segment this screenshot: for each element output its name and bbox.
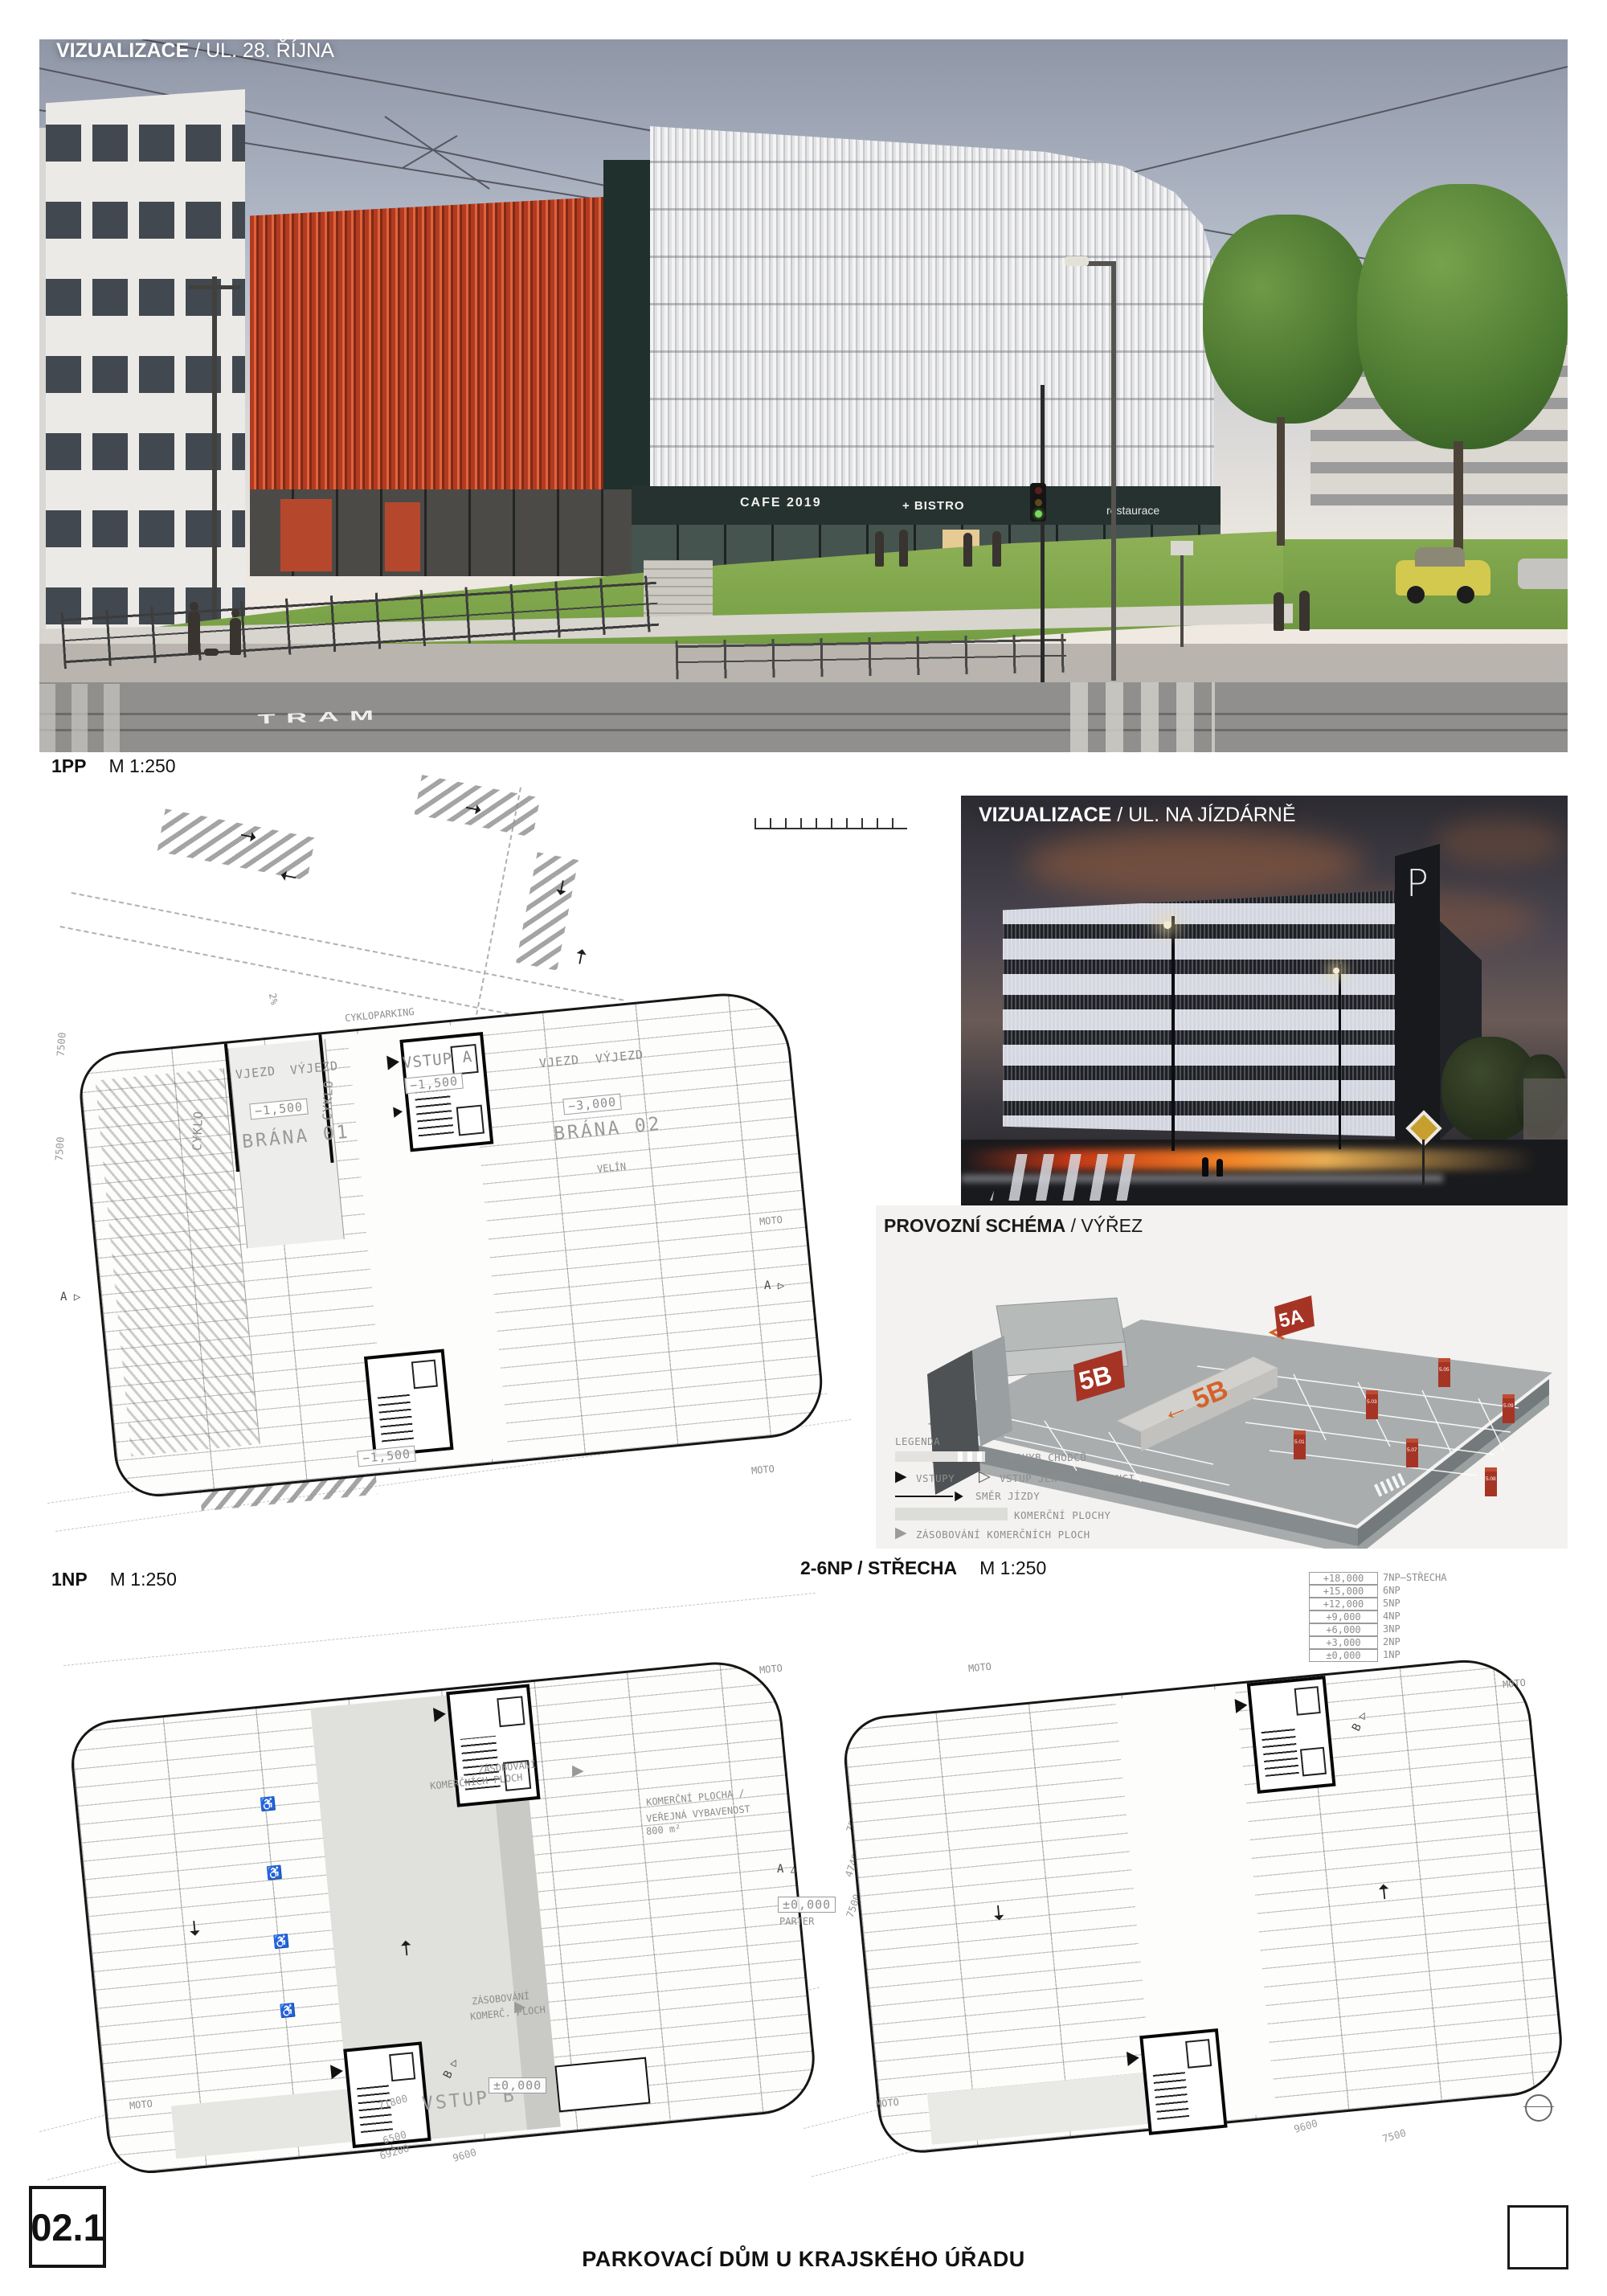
plan-1np-scale: M 1:250 [110, 1569, 177, 1590]
red-pillar: 5.09 [1503, 1394, 1515, 1423]
visualization-street-label-rest: / UL. 28. ŘÍJNA [189, 39, 334, 62]
operations-scheme: PROVOZNÍ SCHÉMA / VÝŘEZ [876, 1205, 1568, 1549]
svg-text:5.05: 5.05 [1439, 1367, 1450, 1373]
plan-1np-name: 1NP [51, 1569, 88, 1590]
label-moto: MOTO [875, 2097, 899, 2110]
entrance-marker [393, 1106, 403, 1118]
plan-26np-building: ➝ ➝ [840, 1654, 1567, 2157]
person-silhouette [1202, 1157, 1208, 1177]
direction-arrow: ➝ [568, 947, 594, 967]
legend-item: POHYB CHODCŮ [1009, 1451, 1086, 1463]
supply-triangle-icon: ▶ [572, 1763, 584, 1778]
street-lamp-luminaire [1065, 256, 1089, 266]
railing [676, 634, 1067, 679]
street-lamp-pole [1111, 263, 1116, 681]
elevation-value: +18,000 [1309, 1572, 1378, 1585]
accessible-parking-icon: ♿ [279, 2002, 296, 2020]
parking-house-slat-facade [650, 126, 1214, 493]
night-lamp-glow [1333, 968, 1339, 974]
elevation-value: +9,000 [1309, 1610, 1378, 1623]
grid-line [63, 1593, 816, 1666]
utility-pole [212, 276, 217, 654]
direction-arrow: ➝ [394, 1939, 419, 1958]
staff-entrance-triangle-icon: ▷ [979, 1469, 991, 1484]
svg-text:5.01: 5.01 [1294, 1439, 1305, 1445]
edge-zone [927, 2070, 1172, 2144]
crosswalk-left [39, 684, 129, 752]
plan-26np: 2-6NP / STŘECHAM 1:250 ➝ ➝ +18,0007NP–ST… [795, 1557, 1568, 2200]
person-head [190, 602, 198, 611]
red-pillar: 5.05 [1438, 1358, 1450, 1387]
dimension: 7500 [53, 1136, 67, 1161]
elevation-value: +3,000 [1309, 1636, 1378, 1649]
dimension: 7500 [55, 1032, 68, 1057]
plan-1np-title: 1NPM 1:250 [51, 1569, 177, 1590]
person-silhouette [1274, 592, 1284, 631]
entrance-marker [433, 1707, 447, 1722]
person-silhouette [899, 530, 908, 567]
elevation-name: 1NP [1378, 1649, 1401, 1662]
night-lamp-pole [1172, 916, 1175, 1151]
elevation-name: 4NP [1378, 1610, 1401, 1623]
legend-item: VSTUP JEN ZAMĚSTNANCI [1000, 1472, 1135, 1484]
footer-empty-box [1507, 2205, 1568, 2269]
crosswalk [1070, 682, 1215, 752]
car-wheel [1407, 586, 1425, 604]
board-title: PARKOVACÍ DŮM U KRAJSKÉHO ÚŘADU [0, 2247, 1607, 2272]
elevation-name: 2NP [1378, 1636, 1401, 1649]
plan-1pp-scale: M 1:250 [108, 755, 175, 776]
plan-26np-name: 2-6NP / STŘECHA [800, 1557, 957, 1578]
night-lamp-glow [1163, 921, 1172, 929]
level-label: ±0,000 [489, 2077, 546, 2093]
legend-item: VSTUPY [916, 1472, 955, 1484]
direction-arrow: ➝ [278, 863, 298, 889]
sunset-cloud [1025, 828, 1363, 900]
visualization-street-label: VIZUALIZACE / UL. 28. ŘÍJNA [56, 39, 334, 63]
label-cyklo: CYKLO [190, 1111, 206, 1152]
accessible-parking-icon: ♿ [266, 1864, 284, 1882]
section-marker-a: A △ [777, 1863, 797, 1876]
label-slope: 2% [267, 992, 280, 1005]
entrance-marker [386, 1054, 400, 1070]
svg-text:5.07: 5.07 [1407, 1447, 1417, 1453]
visualization-street-label-bold: VIZUALIZACE [56, 39, 189, 62]
person-silhouette [230, 618, 241, 655]
elevation-value: +6,000 [1309, 1623, 1378, 1636]
traffic-light-pole [1041, 385, 1045, 682]
night-crosswalk [990, 1154, 1151, 1201]
dimension: 9600 [452, 2146, 478, 2164]
svg-text:5.03: 5.03 [1367, 1399, 1377, 1405]
person-head [231, 609, 239, 617]
plan-1pp-title: 1PPM 1:250 [51, 755, 176, 777]
elevation-name: 6NP [1378, 1585, 1401, 1598]
entrance-triangle-icon: ▶ [895, 1469, 907, 1484]
person-silhouette [992, 531, 1001, 567]
red-pillar: 5.03 [1366, 1390, 1378, 1419]
elevation-name: 3NP [1378, 1623, 1401, 1636]
storefront-red-wall [385, 502, 420, 571]
sign-post [1422, 1140, 1425, 1188]
night-far-house [1523, 1078, 1568, 1141]
label-moto: MOTO [1502, 1677, 1526, 1691]
stair-core [1247, 1676, 1336, 1794]
section-marker-a: A ▷ [60, 1291, 80, 1304]
tree-trunk [1454, 441, 1463, 562]
tree-trunk [1277, 417, 1285, 546]
label-cykloparking: CYKLOPARKING [345, 1006, 415, 1024]
bus-stop-sign [1171, 541, 1193, 555]
accessible-parking-icon: ♿ [260, 1795, 277, 1813]
utility-pole-crossarm [189, 285, 240, 289]
elevation-name: 7NP–STŘECHA [1378, 1572, 1446, 1585]
legend-item: ZÁSOBOVÁNÍ KOMERČNÍCH PLOCH [916, 1529, 1090, 1541]
label-cyklo: CYKLO [320, 1080, 336, 1121]
label-moto: MOTO [129, 2098, 153, 2112]
legend-title: LEGENDA [895, 1435, 940, 1447]
person-silhouette [1299, 591, 1310, 631]
person-silhouette [188, 612, 200, 653]
legend-commercial-bar [895, 1508, 1008, 1520]
sign-bistro: + BISTRO [902, 499, 965, 513]
person-silhouette [1216, 1159, 1223, 1177]
presentation-board: CAFE 2019 + BISTRO restaurace TRAM [0, 0, 1607, 2296]
stair-core [1139, 2028, 1227, 2135]
stair-core [364, 1349, 454, 1458]
car-yellow-cabin [1415, 547, 1465, 567]
elevation-value: +12,000 [1309, 1598, 1378, 1610]
red-pillar: 5.07 [1406, 1439, 1418, 1467]
supply-triangle-icon: ▶ [895, 1525, 907, 1541]
storefront-red-wall [280, 499, 332, 571]
direction-arrow: ➝ [182, 1919, 207, 1938]
car-wheel [1457, 586, 1474, 604]
visualization-street: CAFE 2019 + BISTRO restaurace TRAM [39, 39, 1568, 752]
elevation-value: +15,000 [1309, 1585, 1378, 1598]
legend-arrow-line [895, 1496, 953, 1497]
person-silhouette [875, 531, 884, 567]
legend-pedestrian-bar [895, 1451, 985, 1462]
wc-block [554, 2057, 650, 2113]
plan-1pp-name: 1PP [51, 755, 86, 776]
elevation-table: +18,0007NP–STŘECHA +15,0006NP +12,0005NP… [1309, 1572, 1446, 1662]
elevation-value: ±0,000 [1309, 1649, 1378, 1662]
car-silver [1518, 559, 1568, 589]
label-moto: MOTO [759, 1663, 783, 1676]
red-pillar: 5.08 [1485, 1467, 1497, 1496]
entrance-marker [1127, 2051, 1140, 2066]
tram-rail [39, 729, 1568, 731]
visualization-night-label-bold: VIZUALIZACE [979, 804, 1111, 826]
sunset-cloud [1435, 818, 1564, 866]
visualization-night: P VIZUALIZACE / UL. NA JÍZDÁRNĚ [961, 796, 1568, 1205]
night-lamp-pole [1339, 964, 1341, 1149]
accessible-parking-icon: ♿ [272, 1934, 290, 1951]
visualization-night-label-rest: / UL. NA JÍZDÁRNĚ [1111, 804, 1295, 826]
tree [1357, 184, 1568, 449]
svg-text:5.08: 5.08 [1486, 1476, 1496, 1482]
dog-silhouette [204, 649, 219, 656]
bus-stop-pole [1180, 550, 1184, 647]
person-silhouette [963, 533, 972, 567]
red-pillar: 5.01 [1294, 1430, 1306, 1459]
direction-arrow: ➝ [986, 1904, 1011, 1922]
label-moto: MOTO [759, 1214, 783, 1228]
legend-item: KOMERČNÍ PLOCHY [1014, 1509, 1110, 1521]
detail-circle-symbol [1525, 2094, 1552, 2122]
tree [1203, 215, 1372, 424]
svg-text:5.09: 5.09 [1503, 1403, 1514, 1409]
scale-bar [754, 818, 907, 829]
legend-item: SMĚR JÍZDY [975, 1490, 1040, 1502]
entrance-marker [330, 2064, 344, 2079]
direction-arrow: ➝ [1372, 1883, 1396, 1901]
plan-1pp: 1PPM 1:250 ➝ ➝ ➝ ➝ ➝ [39, 755, 935, 1555]
plan-26np-title: 2-6NP / STŘECHAM 1:250 [800, 1557, 1046, 1579]
supply-triangle-icon: ▶ [514, 1999, 526, 2015]
dimension: 9600 [1293, 2117, 1319, 2135]
tower-p-sign: P [1406, 862, 1429, 905]
visualization-night-label: VIZUALIZACE / UL. NA JÍZDÁRNĚ [979, 804, 1296, 827]
entrance-marker [1235, 1698, 1249, 1713]
plan-1np: 1NPM 1:250 ♿ ♿ ♿ ♿ ➝ ➝ [39, 1569, 855, 2212]
label-moto: MOTO [750, 1463, 775, 1477]
plan-26np-scale: M 1:250 [979, 1557, 1046, 1578]
elevation-name: 5NP [1378, 1598, 1401, 1610]
traffic-light-head [1030, 483, 1046, 522]
dimension: 7500 [1381, 2126, 1408, 2145]
section-marker-a: A ▷ [764, 1279, 784, 1292]
panel-number: 02.1 [31, 2205, 104, 2249]
sign-cafe: CAFE 2019 [740, 496, 822, 510]
legend-arrow-head [955, 1492, 963, 1502]
label-moto: MOTO [967, 1661, 992, 1675]
